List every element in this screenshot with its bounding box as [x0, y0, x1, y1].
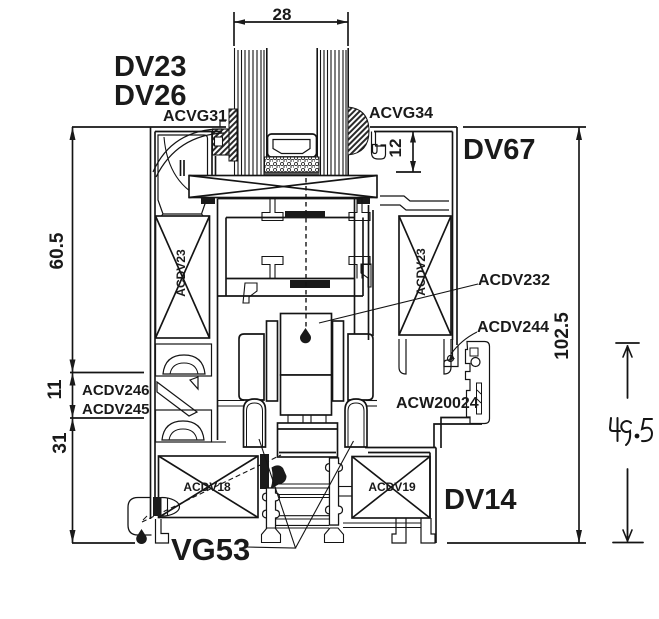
svg-text:12: 12: [386, 139, 405, 158]
svg-text:DV14: DV14: [444, 484, 517, 516]
svg-text:ACVG31: ACVG31: [163, 108, 227, 125]
svg-text:DV67: DV67: [463, 134, 536, 166]
svg-text:DV23: DV23: [114, 51, 187, 83]
svg-text:ACDV244: ACDV244: [477, 319, 549, 336]
svg-text:ACDV23: ACDV23: [174, 249, 188, 297]
svg-text:102.5: 102.5: [552, 312, 573, 360]
svg-text:11: 11: [45, 379, 66, 400]
svg-text:ACDV23: ACDV23: [414, 248, 428, 296]
svg-text:ACW20024: ACW20024: [396, 395, 479, 412]
svg-text:ACVG34: ACVG34: [369, 105, 433, 122]
svg-text:28: 28: [273, 5, 292, 24]
svg-text:31: 31: [50, 432, 71, 454]
svg-text:VG53: VG53: [171, 532, 250, 567]
svg-text:ACDV19: ACDV19: [368, 480, 416, 494]
svg-text:ACDV246: ACDV246: [82, 382, 150, 399]
svg-text:60.5: 60.5: [47, 232, 68, 269]
svg-text:ACDV245: ACDV245: [82, 401, 150, 418]
svg-text:ACDV232: ACDV232: [478, 272, 550, 289]
